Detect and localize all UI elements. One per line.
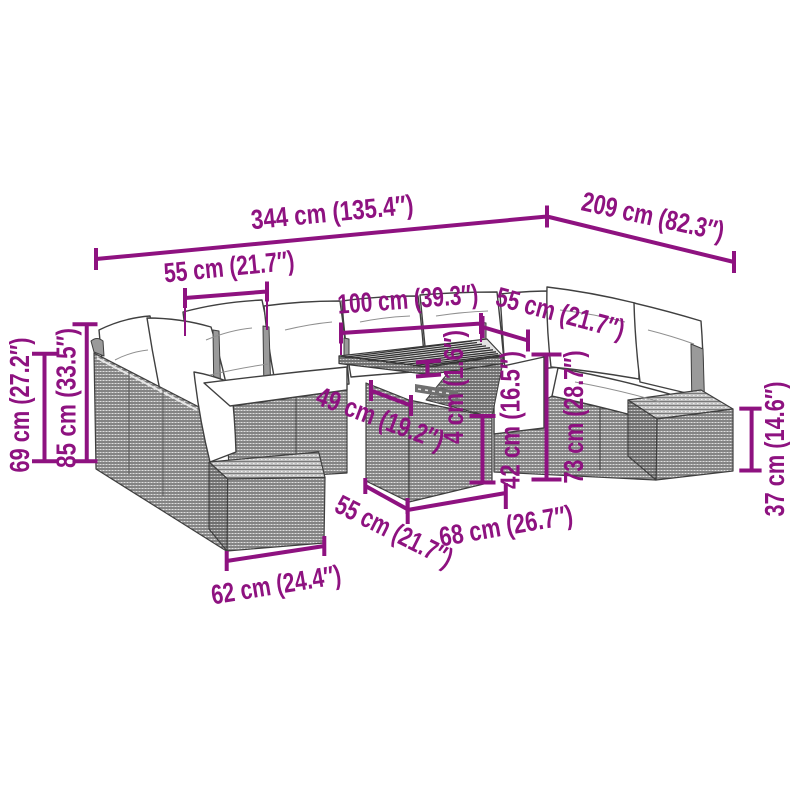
svg-text:42 cm (16.5″): 42 cm (16.5″) bbox=[495, 351, 526, 489]
svg-text:209 cm (82.3″): 209 cm (82.3″) bbox=[579, 186, 727, 247]
svg-text:73 cm (28.7″): 73 cm (28.7″) bbox=[558, 351, 589, 484]
svg-text:37 cm (14.6″): 37 cm (14.6″) bbox=[759, 382, 790, 517]
svg-text:85 cm (33.5″): 85 cm (33.5″) bbox=[51, 328, 82, 468]
svg-text:62 cm (24.4″): 62 cm (24.4″) bbox=[209, 559, 343, 611]
svg-text:344 cm (135.4″): 344 cm (135.4″) bbox=[249, 189, 414, 235]
svg-text:69 cm (27.2″): 69 cm (27.2″) bbox=[4, 338, 35, 473]
svg-text:4 cm (1.6″): 4 cm (1.6″) bbox=[438, 330, 469, 444]
